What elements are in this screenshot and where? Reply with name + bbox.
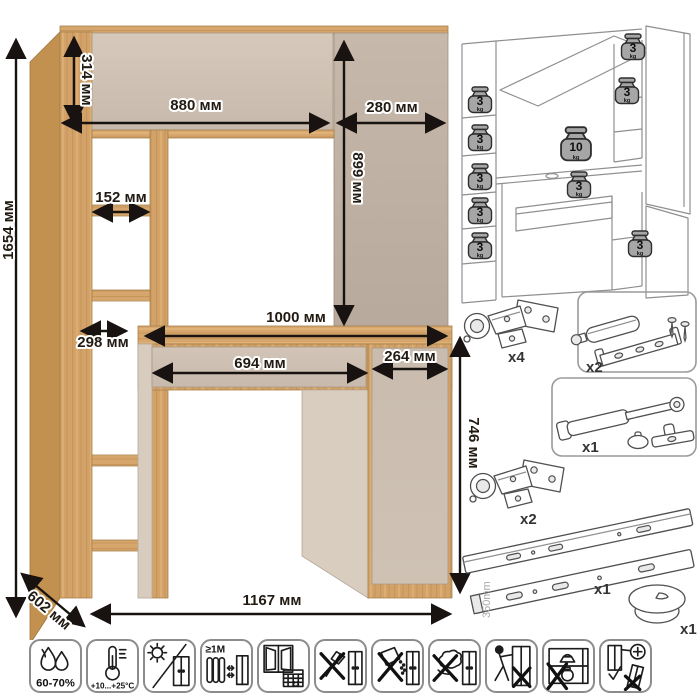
hutch-bottom-rail [92, 130, 334, 138]
weight-badge-shelf-2: 3 kg [469, 125, 492, 151]
svg-text:kg: kg [637, 251, 643, 257]
gas-lift-drawing: x1 [552, 378, 696, 456]
open-drawer-outline [516, 196, 612, 231]
no-pushing-icon [485, 639, 538, 693]
svg-text:3: 3 [477, 132, 484, 146]
svg-text:3: 3 [477, 94, 484, 108]
left-upright-panel [60, 32, 92, 598]
no-direct-sunlight-icon [143, 639, 196, 693]
svg-text:746 мм: 746 мм [465, 417, 482, 468]
svg-text:kg: kg [630, 54, 636, 60]
svg-text:3: 3 [477, 171, 484, 185]
svg-text:kg: kg [477, 145, 483, 151]
weight-badge-shelf-3: 3 kg [469, 164, 492, 190]
heat-distance-icon: ≥1M [200, 639, 253, 693]
svg-text:280 мм: 280 мм [366, 99, 417, 116]
temperature-icon: +10...+25°C [86, 639, 139, 693]
svg-text:880 мм: 880 мм [170, 97, 221, 114]
weight-badge-pedestal: 3 kg [629, 231, 652, 257]
pedestal-door [372, 348, 448, 584]
svg-text:kg: kg [477, 253, 483, 259]
svg-text:x2: x2 [520, 511, 537, 528]
no-heavy-hot-items-icon [542, 639, 595, 693]
svg-text:314 мм: 314 мм [78, 54, 95, 105]
weight-badge-shelf-5: 3 kg [469, 233, 492, 259]
svg-text:x1: x1 [680, 621, 697, 638]
left-side-panel [30, 32, 60, 640]
svg-text:264 мм: 264 мм [384, 348, 435, 365]
svg-text:3: 3 [477, 205, 484, 219]
gas-lift-mounts [628, 420, 694, 448]
svg-text:1167 мм: 1167 мм [243, 592, 302, 609]
svg-text:kg: kg [477, 218, 483, 224]
svg-text:kg: kg [477, 184, 483, 190]
hardware-section: x4 x2 [462, 292, 696, 638]
weight-badge-flap: 3 kg [622, 34, 645, 60]
load-capacity-illustration: 3 kg 3 kg 3 kg 3 kg 3 kg 3 kg [462, 26, 690, 303]
cable-grommet-drawing: x1 [629, 585, 697, 638]
dim-shelf-depth: 298 мм [77, 331, 128, 351]
svg-text:21: 21 [292, 680, 300, 687]
weight-badge-shelf-4: 3 kg [469, 198, 492, 224]
no-abrasives-icon [371, 639, 424, 693]
hutch-flap-front [92, 33, 333, 130]
svg-text:3: 3 [637, 238, 644, 252]
desk-left-leg [138, 344, 152, 598]
svg-text:10: 10 [569, 140, 583, 154]
svg-text:1654 мм: 1654 мм [0, 200, 17, 260]
move-assembled-upright-icon [599, 639, 652, 693]
assembly-diagram-page: 1654 мм 314 мм 880 мм 280 мм 899 мм 152 … [0, 0, 700, 700]
svg-text:899 мм: 899 мм [349, 152, 366, 203]
svg-text:3: 3 [477, 240, 484, 254]
svg-text:+10...+25°C: +10...+25°C [91, 681, 135, 690]
svg-text:x4: x4 [508, 349, 525, 366]
weight-badge-drawer: 3 kg [568, 172, 591, 198]
cable-hole-outline [546, 174, 558, 179]
diagram-canvas: 1654 мм 314 мм 880 мм 280 мм 899 мм 152 … [0, 0, 700, 640]
svg-text:x2: x2 [586, 359, 603, 376]
svg-text:152 мм: 152 мм [95, 189, 146, 206]
dim-total-height: 1654 мм [0, 40, 17, 616]
svg-text:kg: kg [477, 107, 483, 113]
shelf-1 [92, 205, 150, 216]
weight-badge-shelf-1: 3 kg [469, 87, 492, 113]
no-wet-cloth-icon [428, 639, 481, 693]
ventilation-acclimatize-icon: 21 [257, 639, 310, 693]
push-latch-drawing: x2 [569, 292, 696, 376]
svg-text:kg: kg [576, 192, 582, 198]
weight-badge-desktop: 10 kg [561, 127, 591, 161]
svg-text:kg: kg [573, 155, 579, 161]
humidity-icon: 60-70% [29, 639, 82, 693]
svg-text:694 мм: 694 мм [234, 355, 285, 372]
svg-text:kg: kg [624, 98, 630, 104]
svg-text:x1: x1 [594, 581, 611, 598]
no-sharp-tools-icon [314, 639, 367, 693]
care-icon-row: 60-70% +10...+25°C [29, 639, 652, 693]
open-bottom-door-outline [646, 206, 688, 298]
svg-text:350mm: 350mm [481, 581, 493, 618]
svg-text:3: 3 [576, 179, 583, 193]
svg-text:3: 3 [630, 41, 637, 55]
svg-text:≥1M: ≥1M [205, 645, 225, 656]
pedestal-side-wall [302, 390, 368, 598]
svg-text:x1: x1 [582, 439, 599, 456]
door-hinge-drawing: x2 [470, 460, 564, 528]
svg-text:1000 мм: 1000 мм [266, 309, 326, 326]
svg-text:3: 3 [624, 85, 631, 99]
shelf-2 [92, 290, 150, 301]
weight-badge-right-shelf: 3 kg [616, 78, 639, 104]
svg-text:298 мм: 298 мм [77, 334, 128, 351]
flap-hinge-drawing: x4 [464, 300, 558, 366]
svg-text:60-70%: 60-70% [36, 677, 75, 689]
furniture-illustration [30, 26, 452, 640]
